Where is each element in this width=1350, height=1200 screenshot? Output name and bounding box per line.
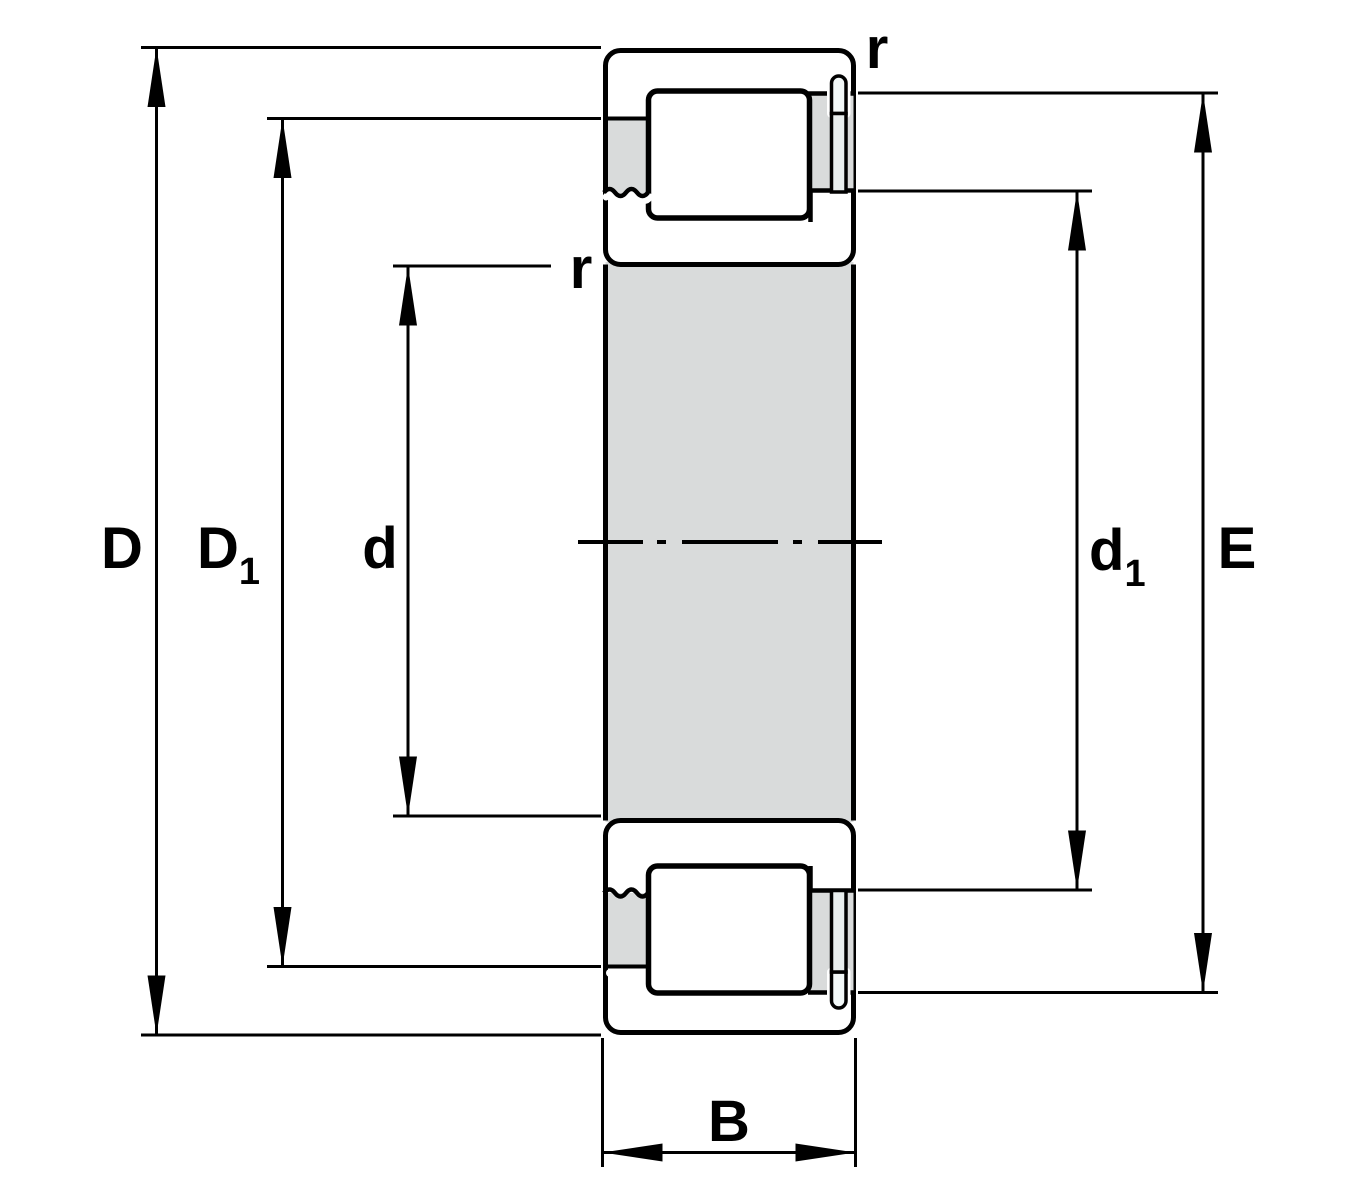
dimension-d1: d1 (858, 191, 1146, 890)
label-D: D (101, 516, 143, 581)
label-r-outer: r (866, 16, 889, 81)
bearing-section-top (604, 51, 854, 265)
pin-body-top (832, 114, 847, 193)
label-d1: d1 (1089, 518, 1146, 595)
arrowhead-down-E (1194, 933, 1212, 993)
pin-cap-bottom (832, 972, 847, 1008)
extension-lines-D1 (267, 119, 601, 967)
dimension-B: B (603, 1038, 856, 1167)
arrowhead-down-D1 (274, 907, 292, 967)
dimension-d: d (362, 266, 601, 816)
extension-lines-E (858, 93, 1218, 993)
dimension-D: D (101, 48, 601, 1036)
pin-cap-top (832, 76, 847, 114)
bearing-section-bottom (604, 821, 854, 1033)
arrowhead-down-d1 (1068, 831, 1086, 891)
pin-body-bottom (832, 891, 847, 973)
arrowhead-up-D (148, 48, 166, 108)
extension-lines-d (393, 266, 601, 816)
arrowhead-up-E (1194, 93, 1212, 153)
label-E: E (1218, 516, 1257, 581)
cage-break-left-bottom (608, 893, 650, 967)
dimension-D1: D1 (197, 119, 601, 967)
arrowhead-up-d1 (1068, 191, 1086, 251)
dimension-E: E (858, 93, 1256, 993)
arrowhead-up-D1 (274, 119, 292, 179)
arrowhead-left-B (603, 1144, 663, 1162)
arrowhead-up-d (399, 266, 417, 326)
roller-top (649, 91, 810, 218)
label-B: B (708, 1089, 750, 1154)
label-D1: D1 (197, 516, 260, 593)
extension-lines-d1 (858, 191, 1092, 890)
arrowhead-down-D (148, 976, 166, 1036)
bearing-dimension-diagram: D D1 d d1 E B r r (0, 0, 1350, 1200)
label-d: d (362, 516, 397, 581)
roller-bottom (649, 866, 810, 993)
cage-break-left-top (608, 118, 650, 194)
arrowhead-down-d (399, 757, 417, 817)
label-r-inner: r (570, 236, 593, 301)
arrowhead-right-B (796, 1144, 856, 1162)
